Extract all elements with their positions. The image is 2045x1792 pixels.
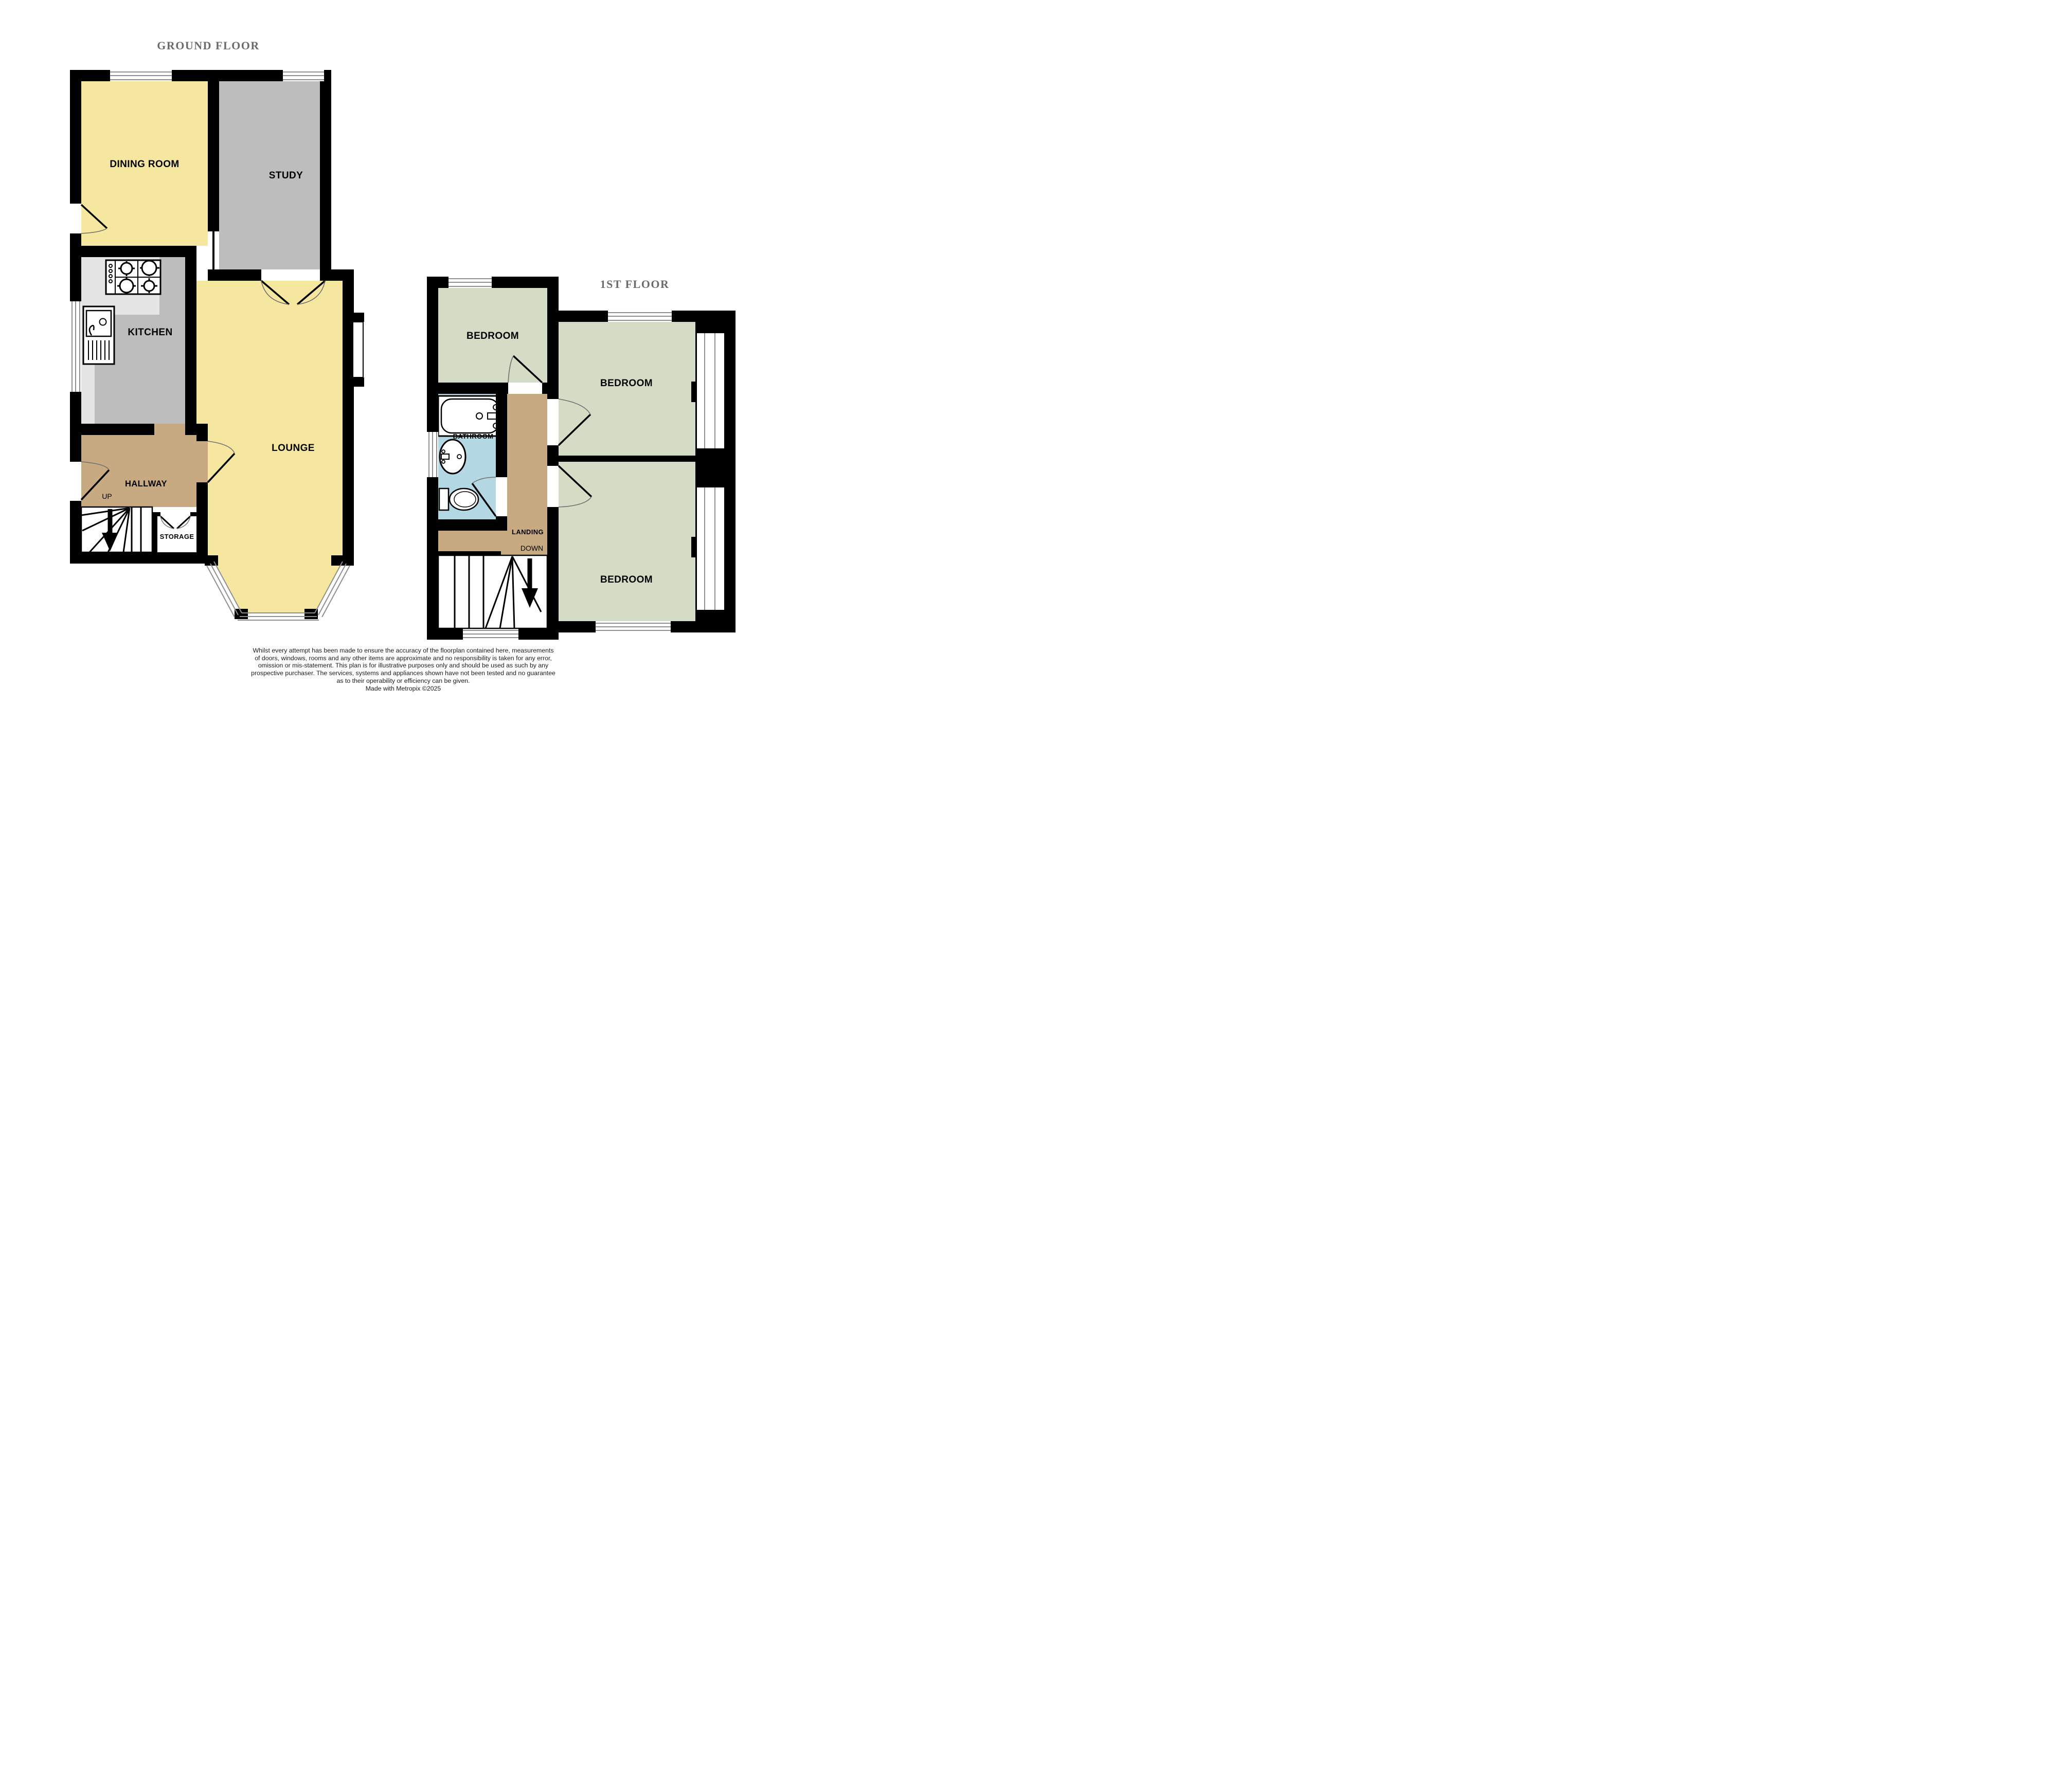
staircase-up [81, 507, 152, 552]
down-label: DOWN [521, 544, 543, 552]
window [427, 432, 438, 477]
stove-icon [106, 260, 160, 294]
kitchen-label: KITCHEN [128, 327, 172, 338]
lounge-label: LOUNGE [272, 443, 315, 454]
washbasin-icon [440, 440, 465, 474]
floorplan-page: GROUND FLOOR [0, 0, 806, 707]
staircase-down [438, 555, 547, 628]
bedroom-right-top-floor [559, 322, 695, 456]
chimney-breast [353, 322, 363, 377]
bedroom-top-left-label: BEDROOM [467, 331, 519, 341]
ground-floor-plan: GROUND FLOOR [70, 39, 364, 620]
bathroom-label: BATHROOM [453, 432, 494, 440]
window [283, 70, 324, 81]
window [596, 621, 671, 632]
sink-icon [83, 306, 114, 364]
bedroom-right-top-label: BEDROOM [600, 378, 653, 389]
window [449, 277, 492, 288]
disclaimer-line: of doors, windows, rooms and any other i… [0, 655, 806, 662]
window [70, 301, 81, 392]
disclaimer-credit: Made with Metropix ©2025 [0, 685, 806, 693]
hallway-label: HALLWAY [125, 479, 167, 488]
disclaimer-line: as to their operability or efficiency ca… [0, 677, 806, 685]
floorplan-canvas: GROUND FLOOR [0, 0, 806, 707]
lounge-floor [196, 281, 343, 613]
first-floor-plan: 1ST FLOOR [427, 277, 736, 640]
hallway-floor [81, 424, 208, 507]
disclaimer-line: omission or mis-statement. This plan is … [0, 662, 806, 669]
window [110, 70, 172, 81]
window [697, 487, 724, 610]
up-label: UP [102, 492, 112, 500]
ground-floor-title: GROUND FLOOR [157, 39, 260, 52]
window [463, 628, 518, 640]
dining-room-label: DINING ROOM [110, 159, 179, 170]
landing-label: LANDING [512, 528, 544, 536]
disclaimer-line: prospective purchaser. The services, sys… [0, 669, 806, 677]
disclaimer: Whilst every attempt has been made to en… [0, 647, 806, 692]
storage-label: STORAGE [160, 533, 194, 540]
bedroom-right-bottom-label: BEDROOM [600, 574, 653, 585]
window [608, 311, 672, 322]
study-label: STUDY [269, 170, 303, 181]
first-floor-title: 1ST FLOOR [600, 278, 670, 291]
bathtub-icon [438, 396, 505, 436]
window [697, 333, 724, 448]
toilet-icon [439, 488, 478, 510]
disclaimer-line: Whilst every attempt has been made to en… [0, 647, 806, 655]
